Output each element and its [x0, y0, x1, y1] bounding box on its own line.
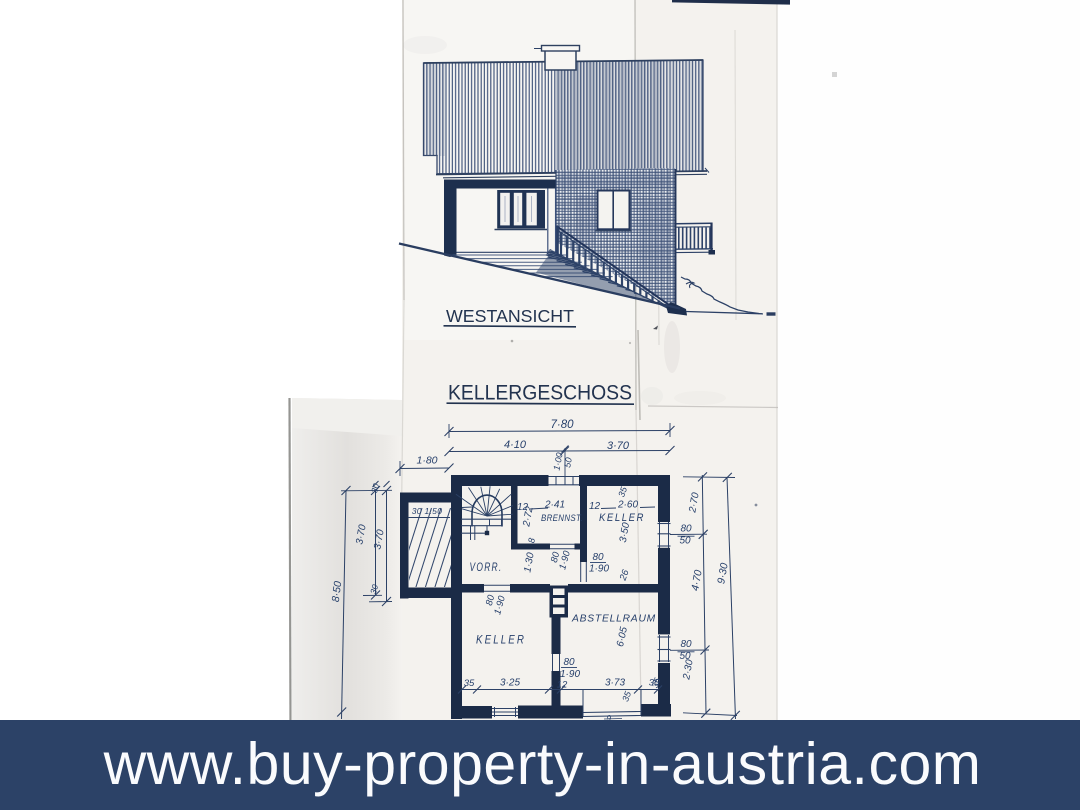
svg-text:8·50: 8·50 — [330, 580, 344, 602]
svg-text:35: 35 — [464, 678, 475, 689]
svg-text:KELLER: KELLER — [476, 633, 526, 647]
svg-text:WESTANSICHT: WESTANSICHT — [446, 306, 574, 326]
svg-text:1·90: 1·90 — [589, 564, 609, 575]
svg-text:3·73: 3·73 — [605, 678, 625, 689]
svg-text:ABSTELLRAUM: ABSTELLRAUM — [571, 613, 656, 625]
svg-text:50: 50 — [679, 651, 691, 662]
svg-text:3·25: 3·25 — [500, 678, 520, 689]
svg-text:2·60: 2·60 — [617, 500, 638, 511]
svg-text:50: 50 — [562, 457, 574, 469]
svg-text:KELLERGESCHOSS: KELLERGESCHOSS — [448, 381, 632, 405]
svg-text:80: 80 — [680, 524, 692, 535]
svg-text:4·10: 4·10 — [504, 439, 527, 451]
svg-text:80: 80 — [592, 552, 604, 563]
svg-text:3·70: 3·70 — [607, 440, 630, 452]
svg-text:80: 80 — [563, 657, 575, 668]
svg-text:30 1:50: 30 1:50 — [412, 506, 442, 516]
svg-text:12: 12 — [589, 501, 601, 512]
svg-text:7·80: 7·80 — [550, 419, 574, 431]
svg-text:2·41: 2·41 — [544, 500, 565, 511]
svg-text:1·90: 1·90 — [560, 669, 580, 680]
svg-text:50: 50 — [679, 536, 691, 547]
svg-text:1·80: 1·80 — [416, 455, 437, 467]
svg-text:BRENNST.: BRENNST. — [541, 513, 583, 524]
svg-text:80: 80 — [680, 639, 692, 650]
svg-text:VORR.: VORR. — [470, 560, 503, 574]
